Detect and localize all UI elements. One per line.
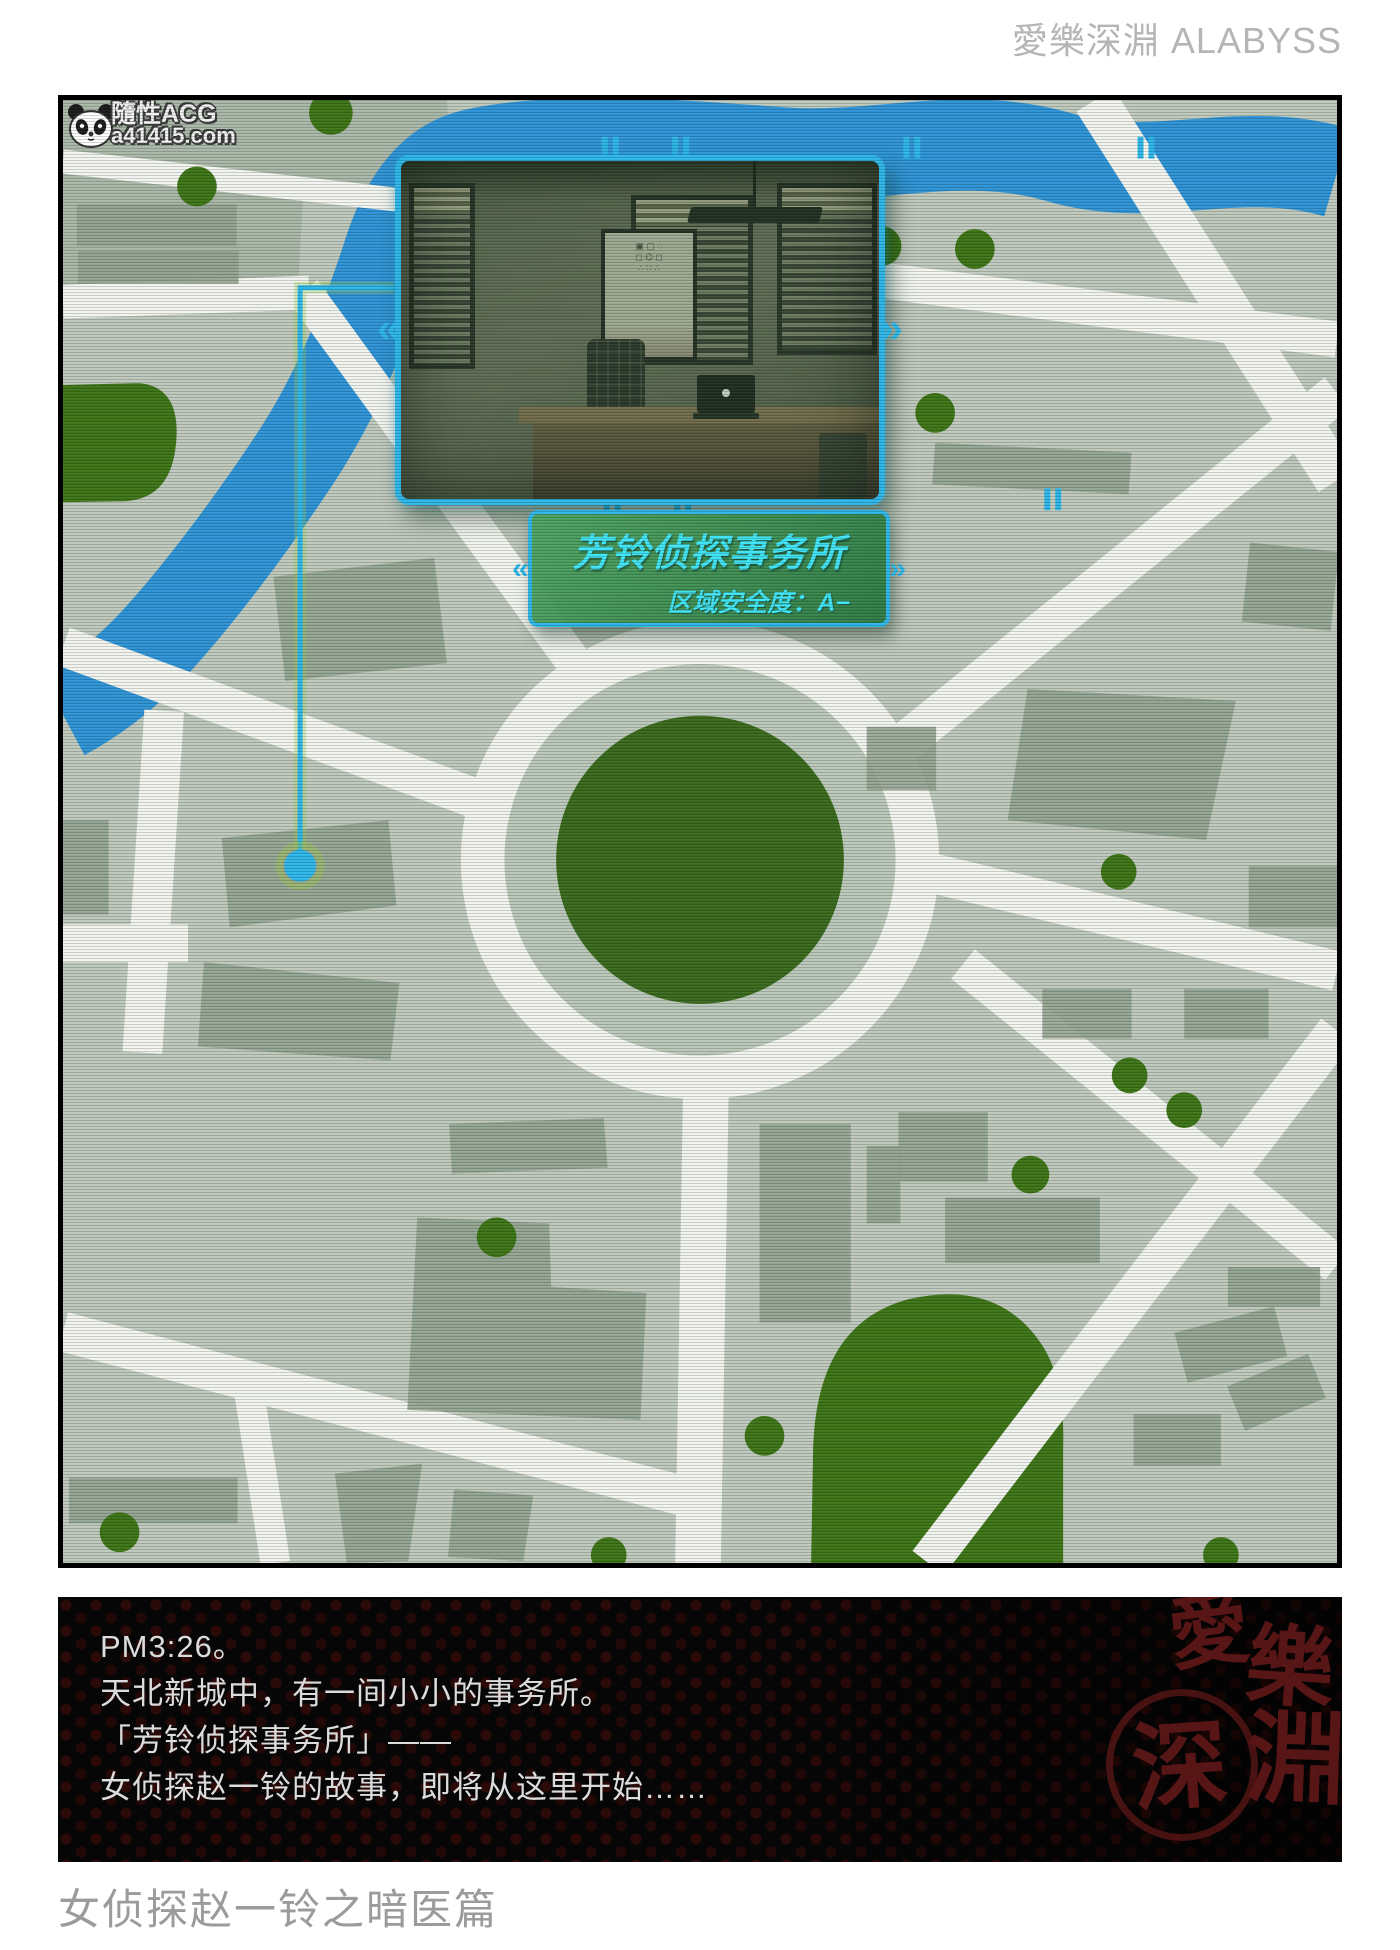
episode-caption: 女侦探赵一铃之暗医篇	[58, 1876, 498, 1937]
right-chevron-icon: »	[889, 554, 906, 584]
seal-char: 深	[1129, 1716, 1231, 1818]
dialogue-text: PM3:26。 天北新城中，有一间小小的事务所。 「芳铃侦探事务所」—— 女侦探…	[100, 1623, 708, 1811]
dialogue-panel[interactable]: PM3:26。 天北新城中，有一间小小的事务所。 「芳铃侦探事务所」—— 女侦探…	[58, 1597, 1342, 1862]
left-chevron-icon: «	[377, 307, 400, 349]
game-screenshot-page: 愛樂深淵 ALABYSS	[0, 0, 1400, 1950]
city-map-panel[interactable]: « » ▣ ▢ ◌◻ ⌬ ◻∴ ∷ ∴ « »	[58, 95, 1342, 1568]
seal-char: 淵	[1244, 1707, 1342, 1810]
location-label[interactable]: « » 芳铃侦探事务所 区域安全度：A−	[528, 510, 890, 627]
office-photo: ▣ ▢ ◌◻ ⌬ ◻∴ ∷ ∴	[401, 161, 879, 499]
location-title: 芳铃侦探事务所	[532, 522, 886, 577]
red-seal-logo: 愛 樂 深 淵	[1084, 1597, 1334, 1862]
seal-char: 愛	[1164, 1597, 1253, 1676]
dialogue-line: 女侦探赵一铃的故事，即将从这里开始……	[100, 1764, 708, 1811]
photo-vignette	[401, 161, 879, 499]
brand-title: 愛樂深淵 ALABYSS	[1012, 12, 1342, 64]
right-chevron-icon: »	[880, 307, 903, 349]
roundabout	[505, 664, 896, 1055]
security-rating: 区域安全度：A−	[532, 583, 886, 619]
left-chevron-icon: «	[512, 554, 529, 584]
security-value: A−	[817, 589, 850, 617]
dialogue-line: 天北新城中，有一间小小的事务所。	[100, 1670, 708, 1717]
watermark: 隨性ACG a41415.com	[67, 102, 236, 150]
location-photo-inset[interactable]: « » ▣ ▢ ◌◻ ⌬ ◻∴ ∷ ∴	[395, 155, 885, 505]
watermark-url: a41415.com	[111, 125, 236, 147]
panda-icon	[67, 102, 115, 150]
dialogue-line: 「芳铃侦探事务所」——	[100, 1717, 708, 1764]
dialogue-line: PM3:26。	[100, 1623, 708, 1670]
